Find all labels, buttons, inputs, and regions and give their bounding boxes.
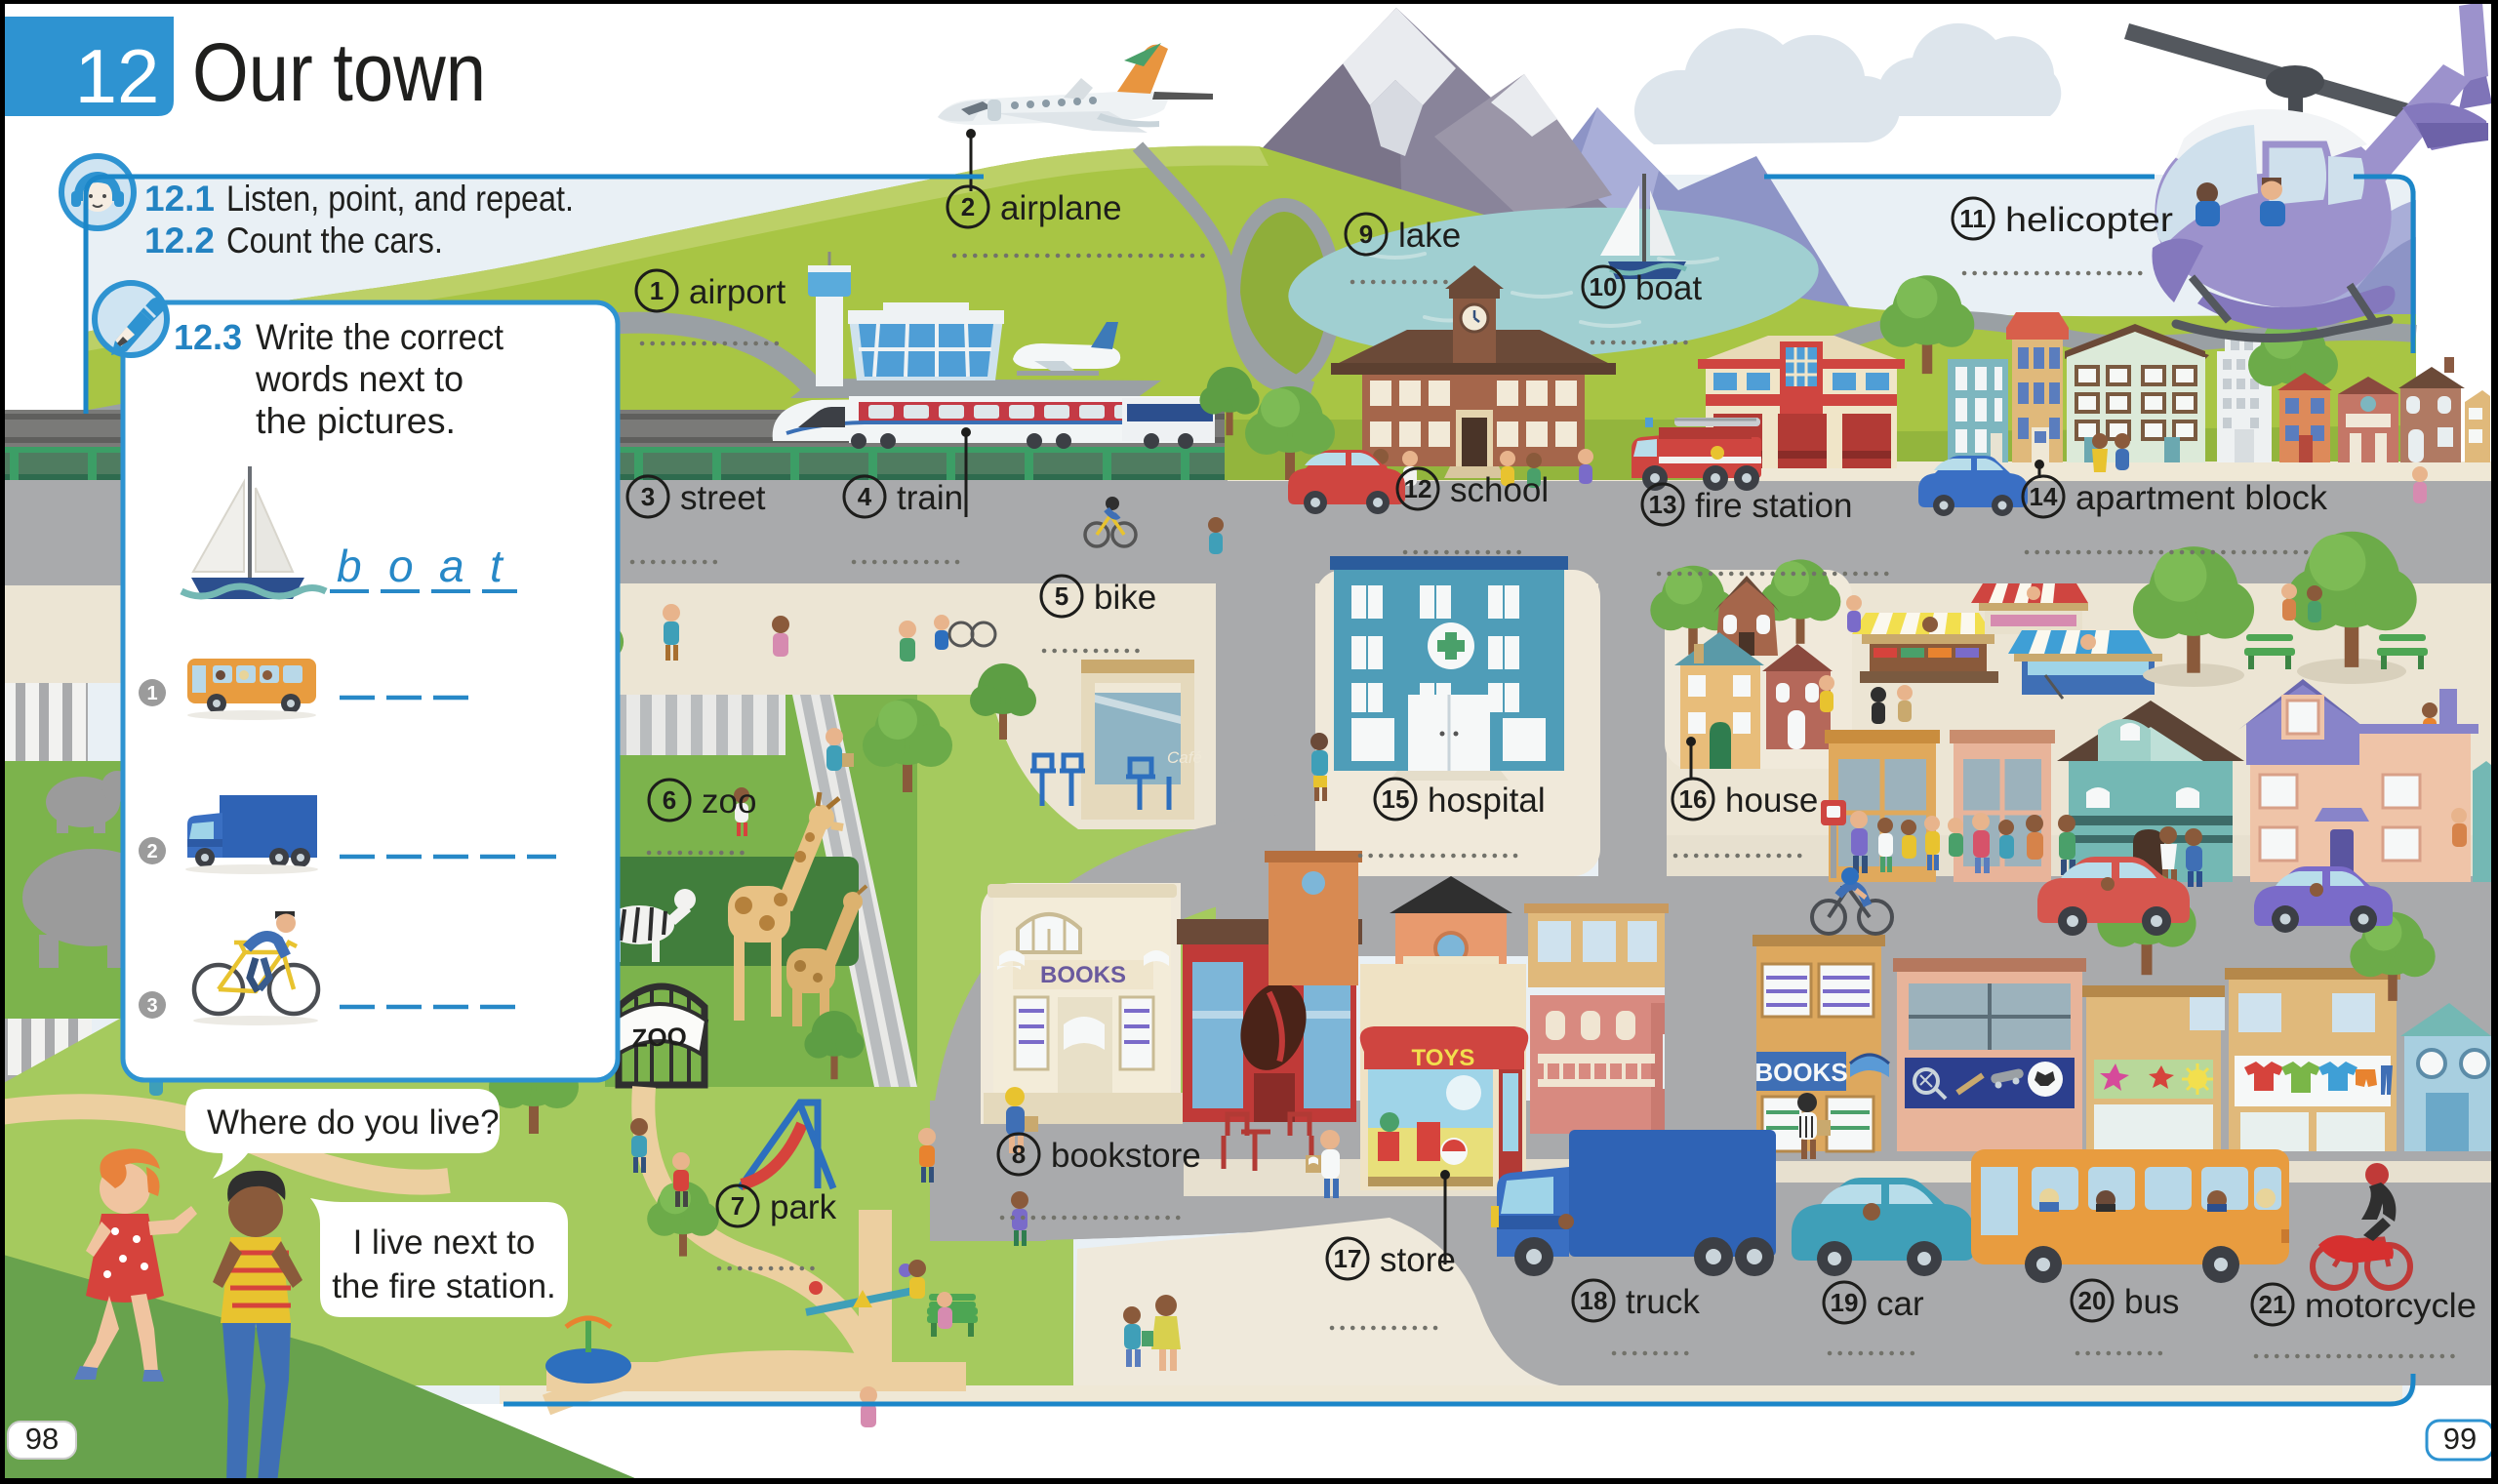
svg-text:9: 9 <box>1359 220 1373 249</box>
svg-text:BOOKS: BOOKS <box>1040 962 1126 988</box>
svg-text:airport: airport <box>689 273 786 311</box>
svg-text:helicopter: helicopter <box>2005 201 2173 239</box>
svg-text:5: 5 <box>1055 582 1068 611</box>
svg-text:airplane: airplane <box>1000 189 1122 227</box>
svg-text:12: 12 <box>1404 474 1432 503</box>
svg-text:boat: boat <box>1635 269 1702 307</box>
svg-text:12.3: 12.3 <box>174 317 242 357</box>
svg-text:a: a <box>439 541 464 591</box>
svg-text:Our town: Our town <box>192 26 486 118</box>
svg-text:park: park <box>770 1188 837 1226</box>
svg-text:1: 1 <box>650 276 664 305</box>
svg-text:17: 17 <box>1334 1244 1362 1273</box>
svg-text:2: 2 <box>961 192 975 221</box>
svg-text:3: 3 <box>641 482 655 511</box>
svg-text:BOOKS: BOOKS <box>1754 1058 1847 1087</box>
svg-text:o: o <box>388 541 414 591</box>
svg-text:10: 10 <box>1590 272 1618 301</box>
svg-text:street: street <box>680 479 766 517</box>
svg-text:8: 8 <box>1012 1140 1026 1169</box>
svg-text:bookstore: bookstore <box>1051 1137 1201 1175</box>
svg-text:car: car <box>1876 1285 1924 1323</box>
svg-text:12: 12 <box>75 33 160 119</box>
svg-text:12.2: 12.2 <box>144 221 215 261</box>
svg-text:the fire station.: the fire station. <box>332 1267 556 1305</box>
svg-text:14: 14 <box>2030 482 2058 511</box>
svg-text:lake: lake <box>1398 217 1461 255</box>
svg-text:house: house <box>1725 782 1818 820</box>
svg-text:the pictures.: the pictures. <box>256 401 456 441</box>
svg-text:6: 6 <box>663 785 676 815</box>
svg-text:1: 1 <box>146 683 157 704</box>
svg-text:2: 2 <box>146 841 157 862</box>
svg-text:bus: bus <box>2124 1283 2179 1321</box>
svg-text:98: 98 <box>25 1422 59 1456</box>
svg-text:Café: Café <box>1167 748 1202 767</box>
svg-text:19: 19 <box>1831 1288 1859 1317</box>
svg-text:motorcycle: motorcycle <box>2305 1287 2477 1325</box>
svg-text:ZOO: ZOO <box>631 1022 687 1053</box>
svg-text:13: 13 <box>1649 490 1677 519</box>
svg-text:bike: bike <box>1094 579 1156 617</box>
svg-text:99: 99 <box>2443 1422 2477 1456</box>
svg-text:11: 11 <box>1959 204 1987 233</box>
svg-text:4: 4 <box>858 482 872 511</box>
svg-text:Count the cars.: Count the cars. <box>226 221 443 261</box>
svg-text:15: 15 <box>1382 784 1410 814</box>
svg-text:7: 7 <box>731 1191 745 1221</box>
svg-text:Write the correct: Write the correct <box>256 317 504 357</box>
svg-text:words next to: words next to <box>255 359 463 399</box>
svg-text:16: 16 <box>1679 784 1708 814</box>
svg-text:Listen, point, and repeat.: Listen, point, and repeat. <box>226 179 574 219</box>
svg-text:12.1: 12.1 <box>144 179 215 219</box>
svg-text:Where do you live?: Where do you live? <box>207 1103 500 1142</box>
svg-text:I live next to: I live next to <box>353 1223 536 1262</box>
svg-text:3: 3 <box>146 995 157 1017</box>
svg-text:school: school <box>1450 471 1549 509</box>
svg-text:TOYS: TOYS <box>1412 1045 1475 1071</box>
svg-text:train: train <box>897 479 963 517</box>
svg-text:b: b <box>337 541 362 591</box>
svg-text:18: 18 <box>1580 1286 1608 1315</box>
svg-text:fire station: fire station <box>1695 487 1852 525</box>
svg-text:t: t <box>490 541 504 591</box>
svg-text:21: 21 <box>2259 1290 2287 1319</box>
svg-text:zoo: zoo <box>702 782 756 821</box>
svg-text:apartment block: apartment block <box>2075 479 2328 517</box>
svg-text:20: 20 <box>2078 1286 2107 1315</box>
svg-text:store: store <box>1380 1241 1456 1279</box>
svg-text:hospital: hospital <box>1428 782 1546 820</box>
svg-text:truck: truck <box>1626 1283 1700 1321</box>
